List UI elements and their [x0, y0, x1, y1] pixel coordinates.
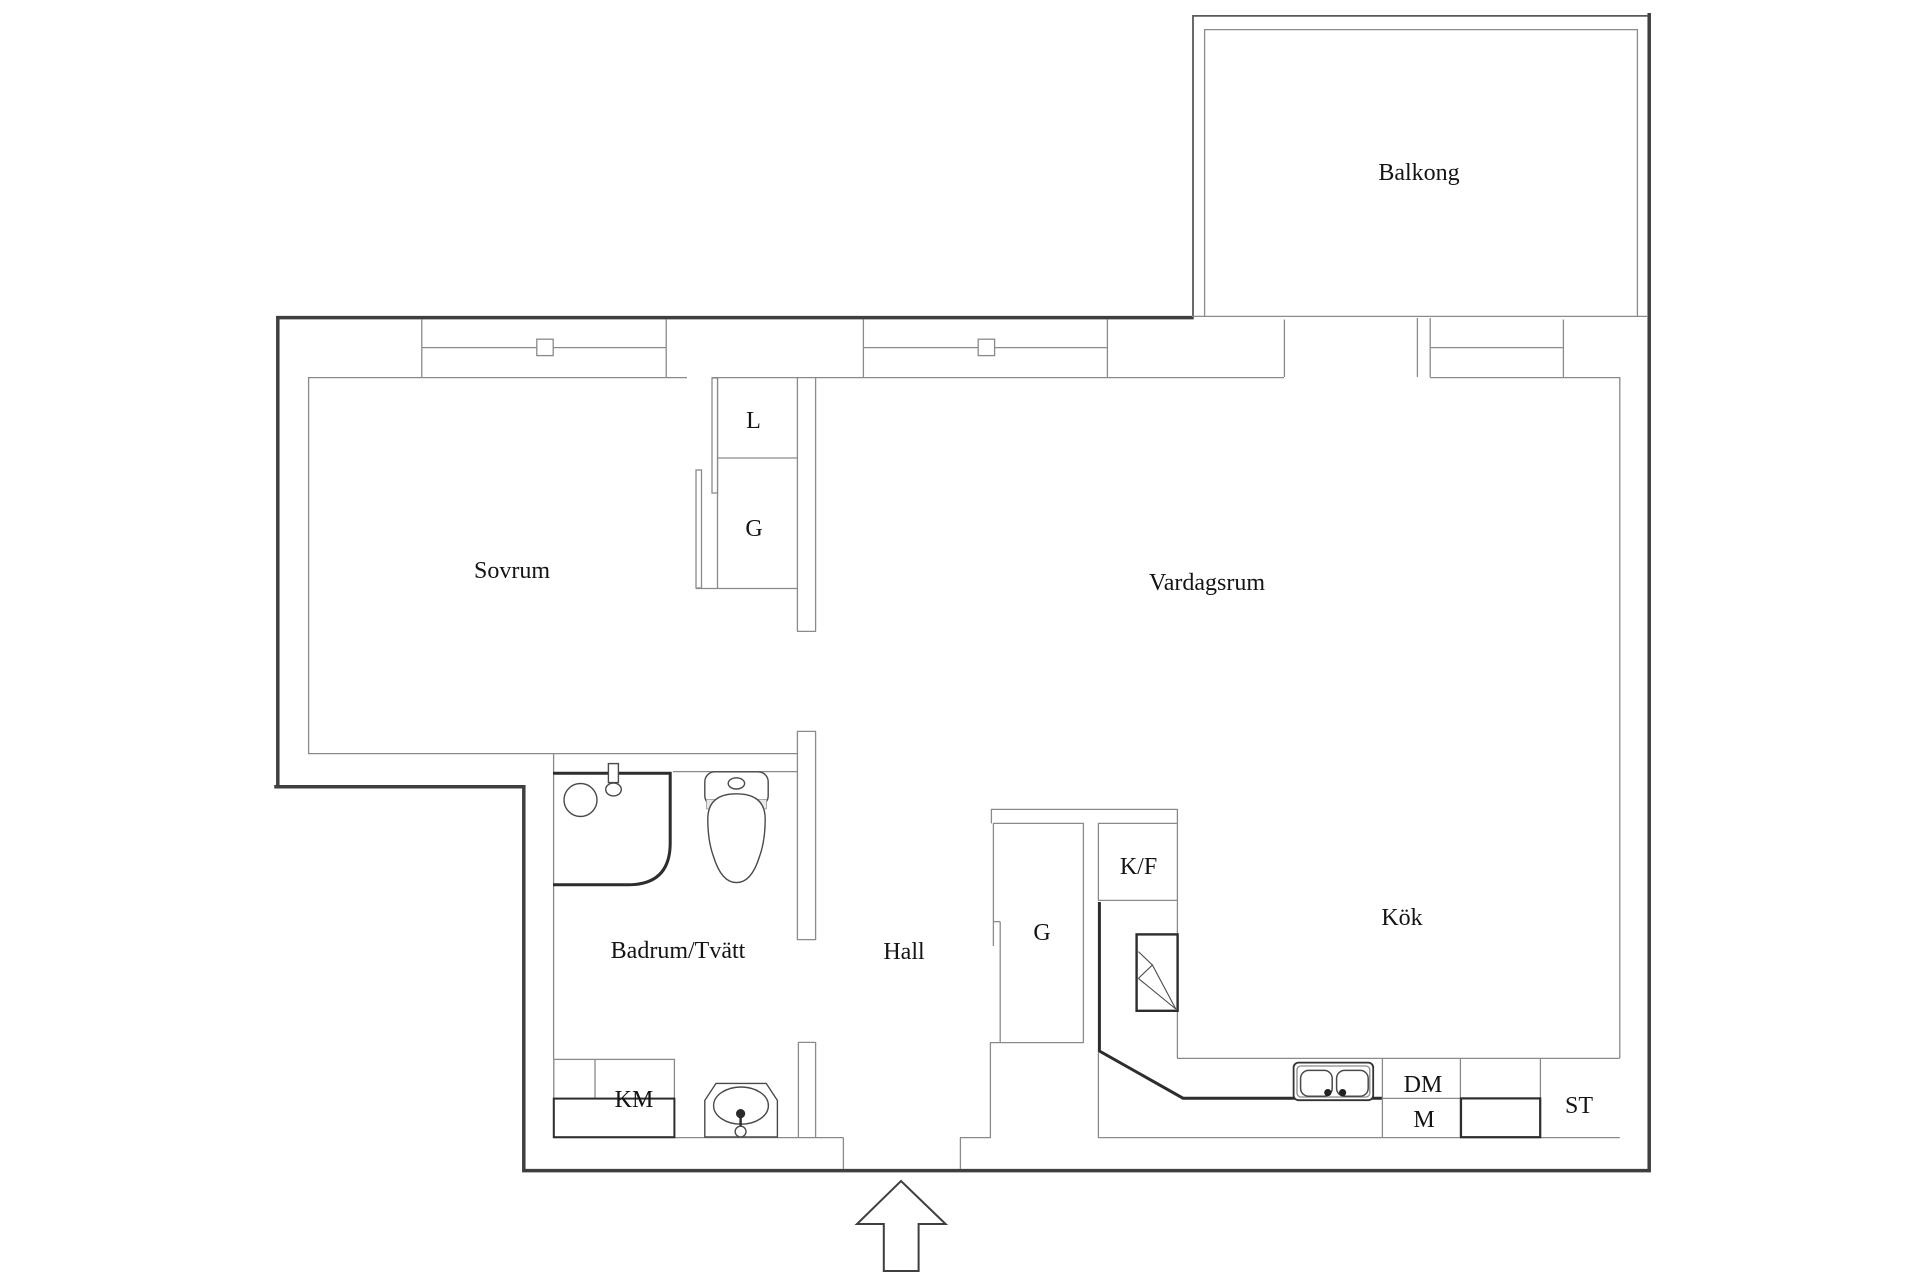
counter-cabinet [1461, 1098, 1540, 1137]
label-badrum: Badrum/Tvätt [611, 938, 746, 964]
sliding-door-panel [712, 378, 718, 493]
kitchen-sink [1294, 1063, 1374, 1101]
toilet [705, 772, 768, 883]
label-wardrobe-sovrum: G [745, 516, 762, 542]
sliding-door-panel [696, 470, 702, 588]
floor-plan-page: Balkong Sovrum Vardagsrum Kök Hall Badru… [0, 0, 1920, 1280]
label-fridge-freezer: K/F [1120, 854, 1157, 880]
window-sovrum [422, 339, 666, 355]
label-sovrum: Sovrum [474, 558, 550, 584]
shower-tap-icon [608, 764, 618, 783]
floor-plan-drawing: Balkong Sovrum Vardagsrum Kök Hall Badru… [0, 0, 1920, 1280]
label-kok: Kök [1381, 905, 1422, 931]
window-latch-icon [537, 339, 553, 355]
shower-tap-icon [606, 783, 622, 796]
exterior-walls [276, 15, 1649, 1171]
stove [1137, 934, 1178, 1010]
kitchen-fittings [1098, 809, 1620, 1138]
tap-icon [1339, 1089, 1346, 1096]
window-latch-icon [978, 339, 994, 355]
label-linen-closet: L [746, 408, 761, 434]
closet-appliance-labels: L G G K/F KM DM M ST [615, 408, 1594, 1133]
washbasin [705, 1083, 778, 1137]
label-wardrobe-hall: G [1033, 920, 1050, 946]
entrance-arrow-icon [857, 1181, 946, 1271]
label-washing-machine: KM [615, 1087, 654, 1113]
interior-walls [308, 318, 1620, 1169]
label-dishwasher: DM [1404, 1072, 1443, 1098]
flush-button-icon [728, 778, 744, 789]
label-balkong: Balkong [1378, 160, 1459, 186]
label-hall: Hall [883, 939, 925, 965]
label-microwave: M [1413, 1107, 1434, 1133]
tap-icon [1324, 1089, 1331, 1096]
shower [553, 764, 670, 885]
window-vardagsrum [863, 339, 1107, 355]
label-vardagsrum: Vardagsrum [1149, 570, 1265, 596]
room-labels: Balkong Sovrum Vardagsrum Kök Hall Badru… [474, 160, 1460, 965]
label-cleaning-closet: ST [1565, 1093, 1593, 1119]
